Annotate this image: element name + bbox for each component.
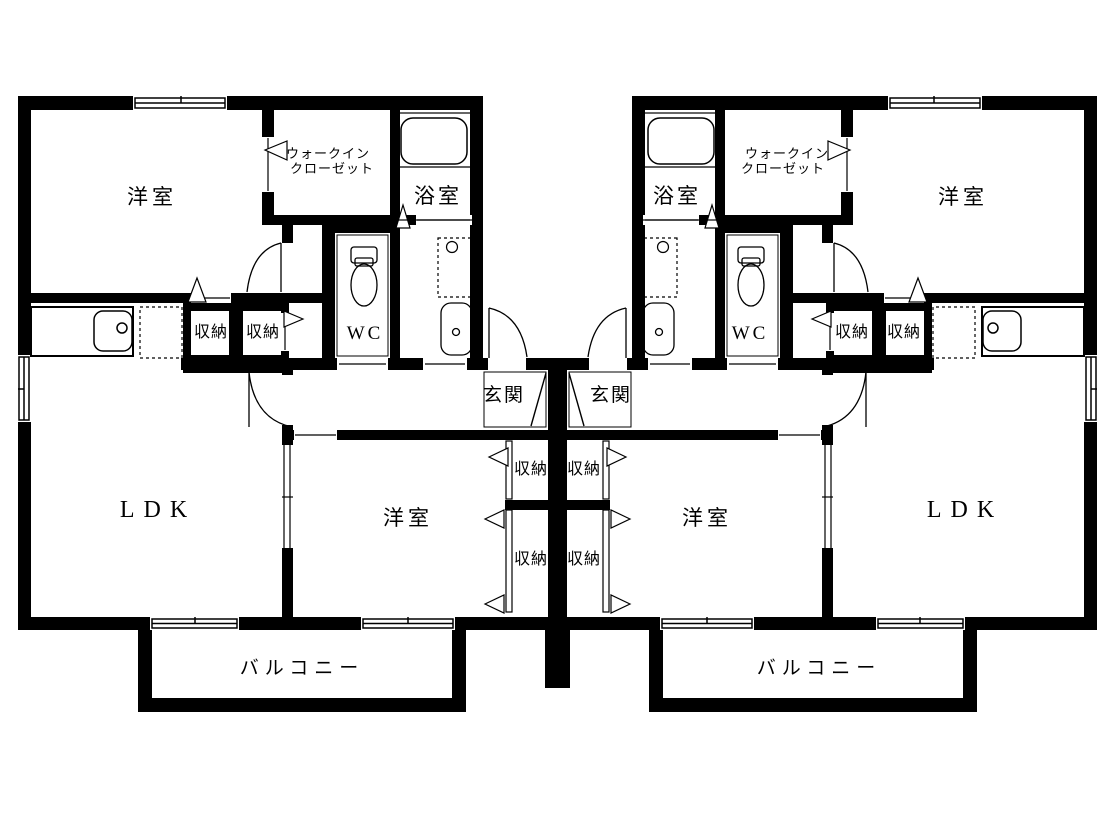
room-label-wic-right-line2: クローゼット: [741, 161, 825, 176]
room-label-entrance-left: 玄関: [483, 384, 525, 406]
room-label-closet-left-lower: 収納: [514, 550, 548, 568]
room-label-storage-left-2: 収納: [246, 323, 280, 341]
room-label-storage-left-1: 収納: [194, 323, 228, 341]
room-label-bath-right: 浴室: [653, 184, 701, 208]
room-label-ldk-right: LDK: [927, 497, 1003, 523]
room-label-bedroom-center-left: 洋室: [383, 506, 433, 530]
room-label-balcony-left: バルコニー: [240, 658, 365, 679]
room-label-wc-left: WC: [347, 323, 384, 344]
room-label-storage-right-1: 収納: [887, 323, 921, 341]
room-label-entrance-right: 玄関: [590, 384, 632, 406]
floor-plan-canvas: 洋室 ウォークイン クローゼット 浴室 WC 収納 収納 玄関 収納 収納 洋室…: [0, 0, 1108, 811]
room-label-balcony-right: バルコニー: [757, 658, 882, 679]
floor-plan: 洋室 ウォークイン クローゼット 浴室 WC 収納 収納 玄関 収納 収納 洋室…: [0, 0, 1108, 811]
room-label-bedroom-top-left: 洋室: [127, 185, 177, 209]
room-label-bedroom-center-right: 洋室: [682, 506, 732, 530]
room-label-wc-right: WC: [732, 323, 769, 344]
room-label-ldk-left: LDK: [120, 497, 196, 523]
room-label-closet-right-lower: 収納: [567, 550, 601, 568]
room-label-wic-right-line1: ウォークイン: [745, 146, 829, 161]
room-label-bath-left: 浴室: [414, 184, 462, 208]
room-label-bedroom-top-right: 洋室: [938, 185, 988, 209]
room-label-wic-left-line2: クローゼット: [290, 161, 374, 176]
room-label-closet-left-upper: 収納: [514, 460, 548, 478]
room-label-storage-right-2: 収納: [835, 323, 869, 341]
room-label-wic-left-line1: ウォークイン: [286, 146, 370, 161]
room-label-closet-right-upper: 収納: [567, 460, 601, 478]
